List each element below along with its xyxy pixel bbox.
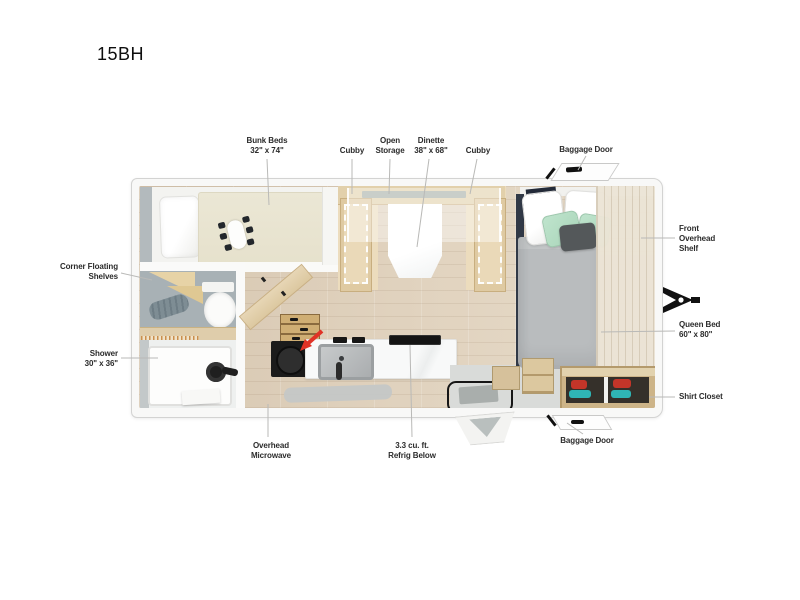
callout-refrig-below: 3.3 cu. ft. Refrig Below (372, 441, 452, 461)
callout-cubby-right: Cubby (448, 146, 508, 156)
callout-baggage-door-top: Baggage Door (546, 145, 626, 155)
callout-queen-bed: Queen Bed 60" x 80" (679, 320, 739, 340)
callout-corner-floating-shelves: Corner Floating Shelves (28, 262, 118, 282)
callout-shower: Shower 30" x 36" (28, 349, 118, 369)
callout-baggage-door-bottom: Baggage Door (547, 436, 627, 446)
floorplan-page: { "title": "15BH", "callouts": { "bunk_b… (0, 0, 800, 600)
microwave-pointer-arrow (300, 331, 322, 351)
callout-front-overhead-shelf: Front Overhead Shelf (679, 224, 739, 253)
callout-overhead-microwave: Overhead Microwave (231, 441, 311, 461)
leader-lines (0, 0, 800, 600)
callout-bunk-beds: Bunk Beds 32" x 74" (227, 136, 307, 156)
callout-shirt-closet: Shirt Closet (679, 392, 739, 402)
